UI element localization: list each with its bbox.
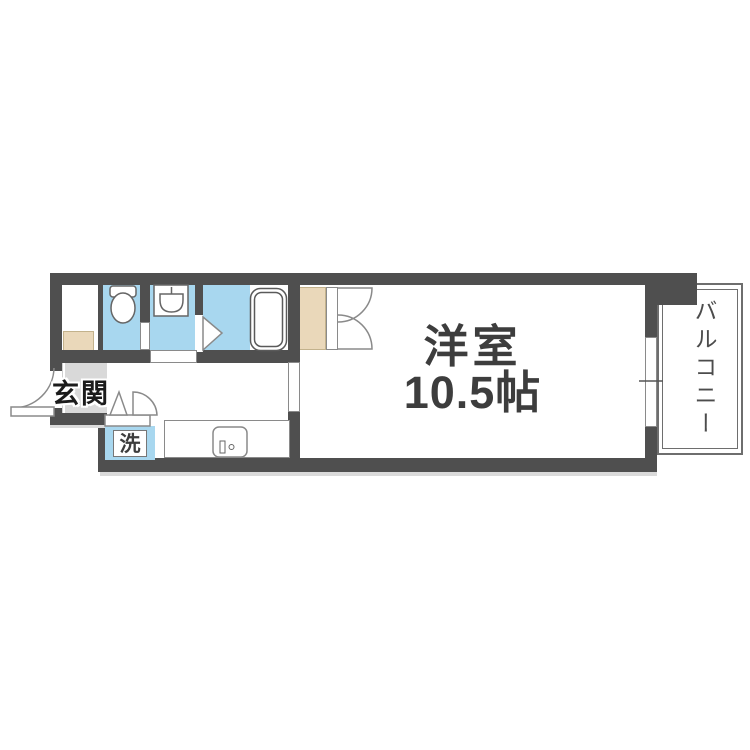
main-room-size: 10.5帖 [340, 370, 605, 415]
toilet-icon [110, 286, 136, 323]
entrance-label: 玄関 [52, 372, 110, 411]
bathroom-door-icon [203, 317, 222, 350]
floorplan-image: 洗 [0, 0, 750, 750]
bathtub-icon [251, 289, 287, 351]
bifold-door-icon [105, 392, 157, 426]
main-room-name: 洋室 [340, 324, 605, 369]
kitchen-sink-icon [213, 427, 247, 457]
washbasin-icon [154, 285, 188, 316]
entrance-door-swing-icon [11, 368, 54, 416]
balcony-label: バルコニー [687, 299, 719, 451]
